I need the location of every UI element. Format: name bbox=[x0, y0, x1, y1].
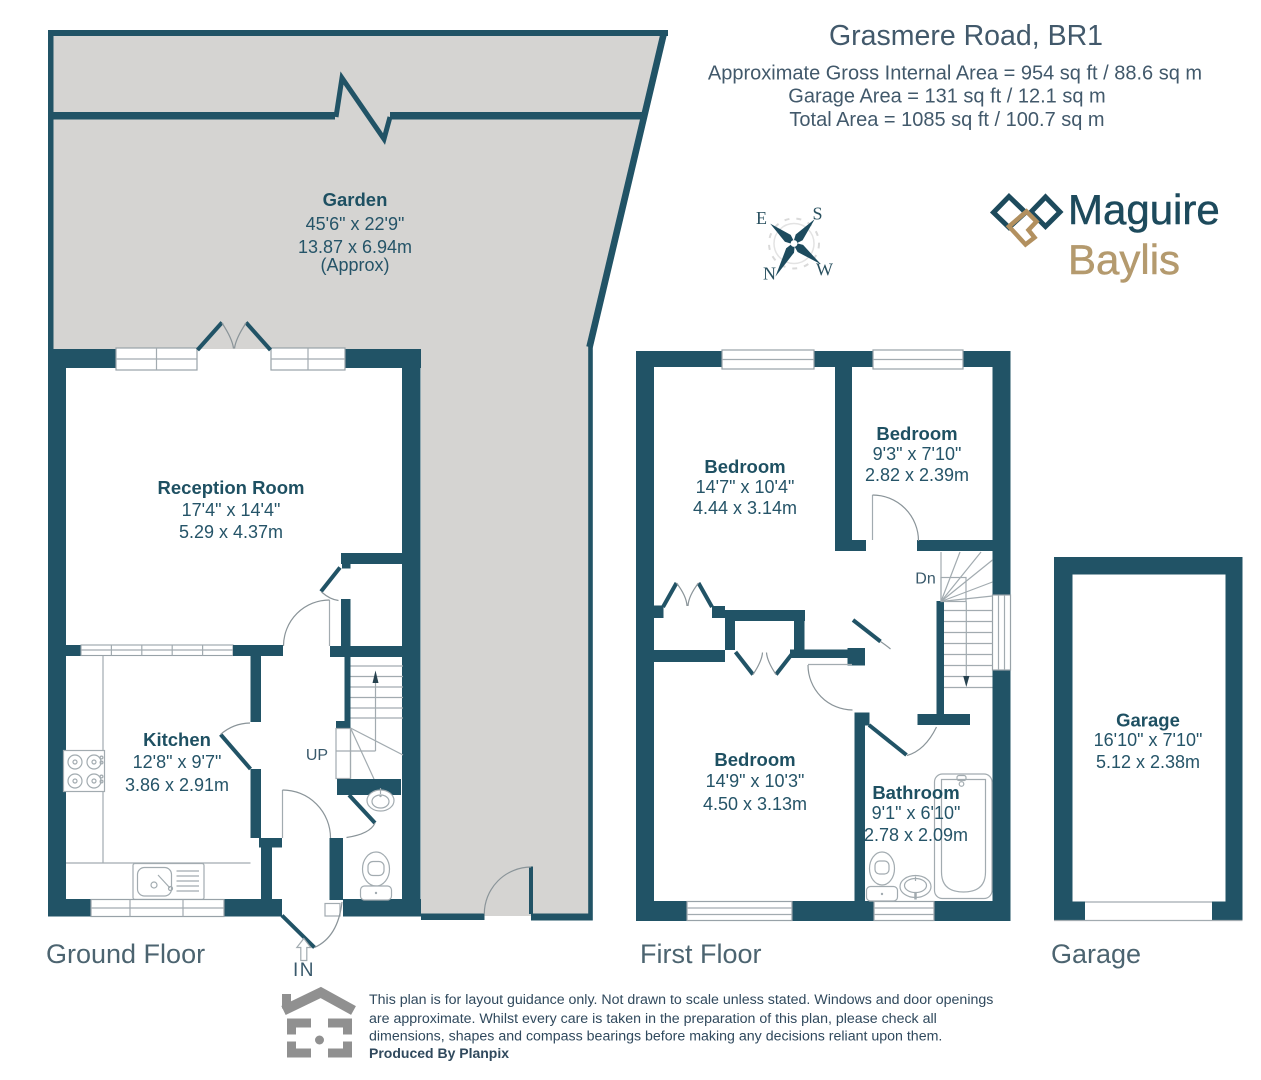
svg-text:(Approx): (Approx) bbox=[320, 255, 389, 275]
svg-text:S: S bbox=[812, 204, 822, 224]
svg-text:Garage Area = 131 sq ft / 12.1: Garage Area = 131 sq ft / 12.1 sq m bbox=[788, 86, 1105, 108]
svg-text:Total Area = 1085 sq ft / 100.: Total Area = 1085 sq ft / 100.7 sq m bbox=[789, 109, 1104, 131]
svg-text:N: N bbox=[763, 264, 776, 284]
svg-text:UP: UP bbox=[306, 747, 328, 764]
svg-text:12'8" x 9'7": 12'8" x 9'7" bbox=[133, 752, 222, 772]
svg-text:Maguire: Maguire bbox=[1068, 186, 1220, 233]
svg-text:Approximate Gross Internal Are: Approximate Gross Internal Area = 954 sq… bbox=[708, 63, 1202, 85]
svg-text:Bedroom: Bedroom bbox=[714, 749, 795, 770]
svg-text:Baylis: Baylis bbox=[1068, 236, 1180, 283]
svg-text:4.44 x 3.14m: 4.44 x 3.14m bbox=[693, 498, 797, 518]
svg-text:5.29 x 4.37m: 5.29 x 4.37m bbox=[179, 522, 283, 542]
svg-text:45'6" x 22'9": 45'6" x 22'9" bbox=[306, 214, 405, 234]
svg-text:Bedroom: Bedroom bbox=[876, 423, 957, 444]
svg-text:Bathroom: Bathroom bbox=[872, 782, 959, 803]
svg-text:14'7" x 10'4": 14'7" x 10'4" bbox=[696, 477, 795, 497]
svg-text:Produced By Planpix: Produced By Planpix bbox=[369, 1045, 509, 1061]
svg-text:Garden: Garden bbox=[323, 189, 388, 210]
svg-text:9'1" x 6'10": 9'1" x 6'10" bbox=[872, 803, 961, 823]
svg-text:W: W bbox=[816, 260, 833, 280]
svg-text:Bedroom: Bedroom bbox=[704, 456, 785, 477]
svg-text:14'9" x 10'3": 14'9" x 10'3" bbox=[706, 771, 805, 791]
svg-text:Kitchen: Kitchen bbox=[143, 729, 211, 750]
svg-text:Grasmere Road, BR1: Grasmere Road, BR1 bbox=[829, 20, 1103, 52]
svg-text:Ground Floor: Ground Floor bbox=[46, 939, 205, 969]
svg-text:Dn: Dn bbox=[915, 571, 935, 588]
svg-text:9'3" x 7'10": 9'3" x 7'10" bbox=[873, 444, 962, 464]
svg-text:3.86 x 2.91m: 3.86 x 2.91m bbox=[125, 775, 229, 795]
svg-text:This plan is for layout guidan: This plan is for layout guidance only. N… bbox=[369, 992, 993, 1008]
svg-text:4.50 x 3.13m: 4.50 x 3.13m bbox=[703, 794, 807, 814]
svg-text:E: E bbox=[756, 208, 767, 228]
svg-text:Reception Room: Reception Room bbox=[158, 477, 305, 498]
svg-text:First Floor: First Floor bbox=[640, 939, 762, 969]
svg-text:IN: IN bbox=[293, 960, 315, 981]
svg-text:Garage: Garage bbox=[1051, 939, 1141, 969]
svg-text:2.82 x 2.39m: 2.82 x 2.39m bbox=[865, 465, 969, 485]
svg-text:16'10" x 7'10": 16'10" x 7'10" bbox=[1094, 730, 1203, 750]
svg-text:13.87 x 6.94m: 13.87 x 6.94m bbox=[298, 237, 412, 257]
svg-text:dimensions, shapes and compass: dimensions, shapes and compass bearings … bbox=[369, 1029, 942, 1045]
svg-text:Garage: Garage bbox=[1116, 710, 1180, 731]
svg-text:17'4" x 14'4": 17'4" x 14'4" bbox=[182, 500, 281, 520]
svg-text:are approximate. Whilst every: are approximate. Whilst every care is ta… bbox=[369, 1011, 937, 1027]
svg-text:5.12 x 2.38m: 5.12 x 2.38m bbox=[1096, 752, 1200, 772]
svg-text:2.78 x 2.09m: 2.78 x 2.09m bbox=[864, 825, 968, 845]
